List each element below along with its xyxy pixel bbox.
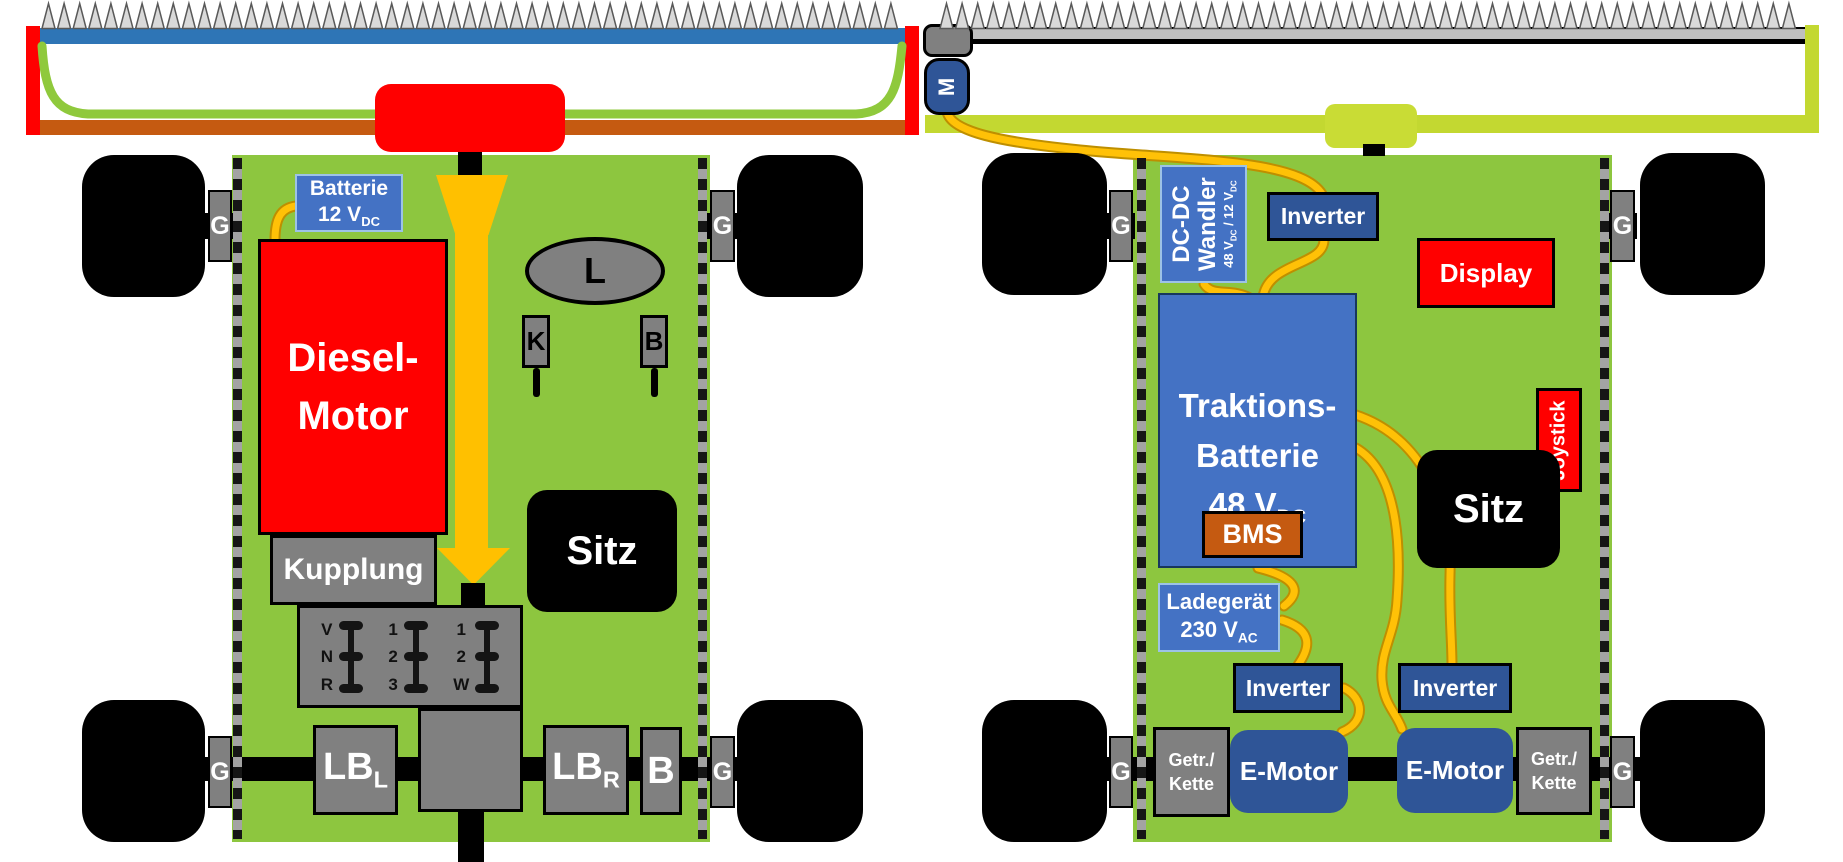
shift-label: V bbox=[321, 621, 333, 638]
gear-chain-line1: Getr./ bbox=[1531, 747, 1577, 771]
left-track-line-left bbox=[233, 158, 242, 839]
shift-label: 2 bbox=[453, 648, 469, 665]
right-hub-g-rear-left: G bbox=[1109, 736, 1133, 808]
battery-voltage: 12 VDC bbox=[318, 202, 380, 230]
seat-label: Sitz bbox=[566, 529, 637, 574]
right-wheel-front-right bbox=[1640, 153, 1765, 295]
seat-label: Sitz bbox=[1453, 487, 1524, 532]
brake-label: B bbox=[647, 750, 674, 793]
display-box: Display bbox=[1417, 238, 1555, 308]
left-wheel-rear-left bbox=[82, 700, 205, 842]
left-cutterbar-blade-bar bbox=[40, 28, 905, 44]
manual-gearbox-box: V N R 1 2 3 1 2 W bbox=[297, 605, 523, 708]
dcdc-label-line1: DC-DC bbox=[1168, 185, 1194, 262]
left-hub-g-front-right: G bbox=[710, 190, 735, 262]
right-seat-box: Sitz bbox=[1417, 450, 1560, 568]
emotor-right-box: E-Motor bbox=[1397, 728, 1513, 813]
gear-chain-line2: Kette bbox=[1169, 772, 1214, 796]
inverter-left-box: Inverter bbox=[1233, 663, 1343, 713]
right-frame-mount-stub bbox=[1363, 144, 1385, 156]
right-hub-g-rear-right: G bbox=[1610, 736, 1635, 808]
clutch-box: Kupplung bbox=[270, 535, 437, 605]
g-label: G bbox=[713, 758, 732, 787]
g-label: G bbox=[1613, 212, 1632, 241]
shift-label: W bbox=[453, 676, 469, 693]
left-hub-g-rear-right: G bbox=[710, 736, 735, 808]
left-track-line-right bbox=[698, 158, 707, 839]
left-hub-g-front-left: G bbox=[208, 190, 232, 262]
left-wheel-front-left bbox=[82, 155, 205, 297]
gear-chain-line1: Getr./ bbox=[1168, 748, 1214, 772]
right-hub-g-front-right: G bbox=[1610, 190, 1635, 262]
shift-label: 2 bbox=[388, 648, 397, 665]
bms-label: BMS bbox=[1223, 519, 1283, 550]
g-label: G bbox=[1111, 212, 1130, 241]
shift-gate-12w: 1 2 W bbox=[453, 621, 499, 693]
emotor-label: E-Motor bbox=[1406, 755, 1504, 786]
lb-right-label: LBR bbox=[552, 746, 620, 794]
right-cutterbar-teeth bbox=[940, 4, 1795, 29]
inverter-cutter-box: Inverter bbox=[1267, 192, 1379, 241]
right-hub-g-front-left: G bbox=[1109, 190, 1133, 262]
traction-battery-line2: Batterie bbox=[1196, 431, 1319, 481]
shift-gate-123: 1 2 3 bbox=[388, 621, 427, 693]
dcdc-voltage: 48 VDC / 12 VDC bbox=[1221, 180, 1238, 268]
dcdc-rotated-text: DC-DC Wandler 48 VDC / 12 VDC bbox=[1168, 177, 1238, 271]
charger-voltage: 230 VAC bbox=[1180, 616, 1257, 647]
right-cutterbar-endcap bbox=[923, 24, 973, 57]
inverter-label: Inverter bbox=[1246, 675, 1330, 702]
right-wheel-front-left bbox=[982, 153, 1107, 295]
left-pto-shaft-top bbox=[458, 150, 482, 178]
steering-wheel: L bbox=[525, 237, 665, 305]
right-track-line-left bbox=[1137, 158, 1146, 839]
engine-label-line1: Diesel- bbox=[287, 329, 418, 387]
engine-label-line2: Motor bbox=[297, 387, 408, 445]
lever-k: K bbox=[522, 315, 550, 368]
lb-left-label: LBL bbox=[323, 746, 388, 794]
gear-chain-left-box: Getr./ Kette bbox=[1153, 727, 1230, 817]
left-brake-box: B bbox=[640, 727, 682, 815]
left-belt-pulley-housing bbox=[375, 84, 565, 152]
display-label: Display bbox=[1440, 258, 1533, 289]
shift-gate-vnr: V N R bbox=[321, 621, 363, 693]
left-brake-band-right-box: LBR bbox=[543, 725, 629, 815]
diesel-engine-box: Diesel- Motor bbox=[258, 239, 448, 535]
left-cutterbar-end-post-left bbox=[26, 26, 40, 135]
battery-label-line1: Batterie bbox=[310, 176, 388, 202]
inverter-label: Inverter bbox=[1281, 203, 1365, 230]
right-wheel-rear-right bbox=[1640, 700, 1765, 842]
lever-k-label: K bbox=[527, 326, 546, 357]
cutterbar-motor-m: M bbox=[924, 58, 970, 115]
shift-label: R bbox=[321, 676, 333, 693]
inverter-label: Inverter bbox=[1413, 675, 1497, 702]
drivetrain-comparison-diagram: Batterie 12 VDC Diesel- Motor Kupplung V… bbox=[0, 0, 1843, 862]
g-label: G bbox=[210, 212, 229, 241]
lever-b-stick bbox=[651, 368, 658, 397]
right-track-line-right bbox=[1600, 158, 1609, 839]
gear-chain-line2: Kette bbox=[1531, 771, 1576, 795]
left-wheel-rear-right bbox=[737, 700, 863, 842]
left-seat-box: Sitz bbox=[527, 490, 677, 612]
emotor-left-box: E-Motor bbox=[1230, 730, 1348, 813]
traction-battery-line1: Traktions- bbox=[1179, 381, 1337, 431]
g-label: G bbox=[210, 758, 229, 787]
right-frame-mount-fitting bbox=[1325, 104, 1417, 148]
g-label: G bbox=[1613, 758, 1632, 787]
g-label: G bbox=[713, 212, 732, 241]
inverter-right-box: Inverter bbox=[1398, 663, 1512, 713]
dcdc-converter-box: DC-DC Wandler 48 VDC / 12 VDC bbox=[1160, 165, 1247, 283]
shift-label: 1 bbox=[453, 621, 469, 638]
left-hub-g-rear-left: G bbox=[208, 736, 232, 808]
lever-b: B bbox=[640, 315, 668, 368]
dcdc-label-line2: Wandler bbox=[1195, 177, 1221, 271]
shift-label: 3 bbox=[388, 676, 397, 693]
left-cutterbar-end-post-right bbox=[905, 26, 919, 135]
right-cutterbar-blade-bar bbox=[968, 27, 1808, 44]
left-drive-belt-band bbox=[455, 233, 488, 550]
g-label: G bbox=[1111, 758, 1130, 787]
shift-gate-icon bbox=[339, 621, 363, 693]
emotor-label: E-Motor bbox=[1240, 756, 1338, 787]
shift-gate-icon bbox=[404, 621, 428, 693]
lever-k-stick bbox=[533, 368, 540, 397]
gear-chain-right-box: Getr./ Kette bbox=[1516, 727, 1592, 815]
cutter-motor-label: M bbox=[934, 77, 960, 95]
shift-label: 1 bbox=[388, 621, 397, 638]
lever-b-label: B bbox=[645, 326, 664, 357]
left-wheel-front-right bbox=[737, 155, 863, 297]
left-starter-battery-box: Batterie 12 VDC bbox=[295, 174, 403, 232]
right-wheel-rear-left bbox=[982, 700, 1107, 842]
left-output-shaft-bottom bbox=[458, 810, 484, 862]
left-brake-band-left-box: LBL bbox=[313, 725, 398, 815]
shift-label: N bbox=[321, 648, 333, 665]
left-cutterbar-teeth bbox=[42, 4, 897, 29]
steering-wheel-label: L bbox=[584, 250, 606, 292]
clutch-label: Kupplung bbox=[284, 553, 424, 587]
left-final-drive-center-box bbox=[418, 708, 523, 812]
charger-label-line1: Ladegerät bbox=[1166, 588, 1271, 617]
shift-gate-icon bbox=[475, 621, 499, 693]
charger-box: Ladegerät 230 VAC bbox=[1158, 583, 1280, 652]
bms-box: BMS bbox=[1202, 511, 1303, 558]
